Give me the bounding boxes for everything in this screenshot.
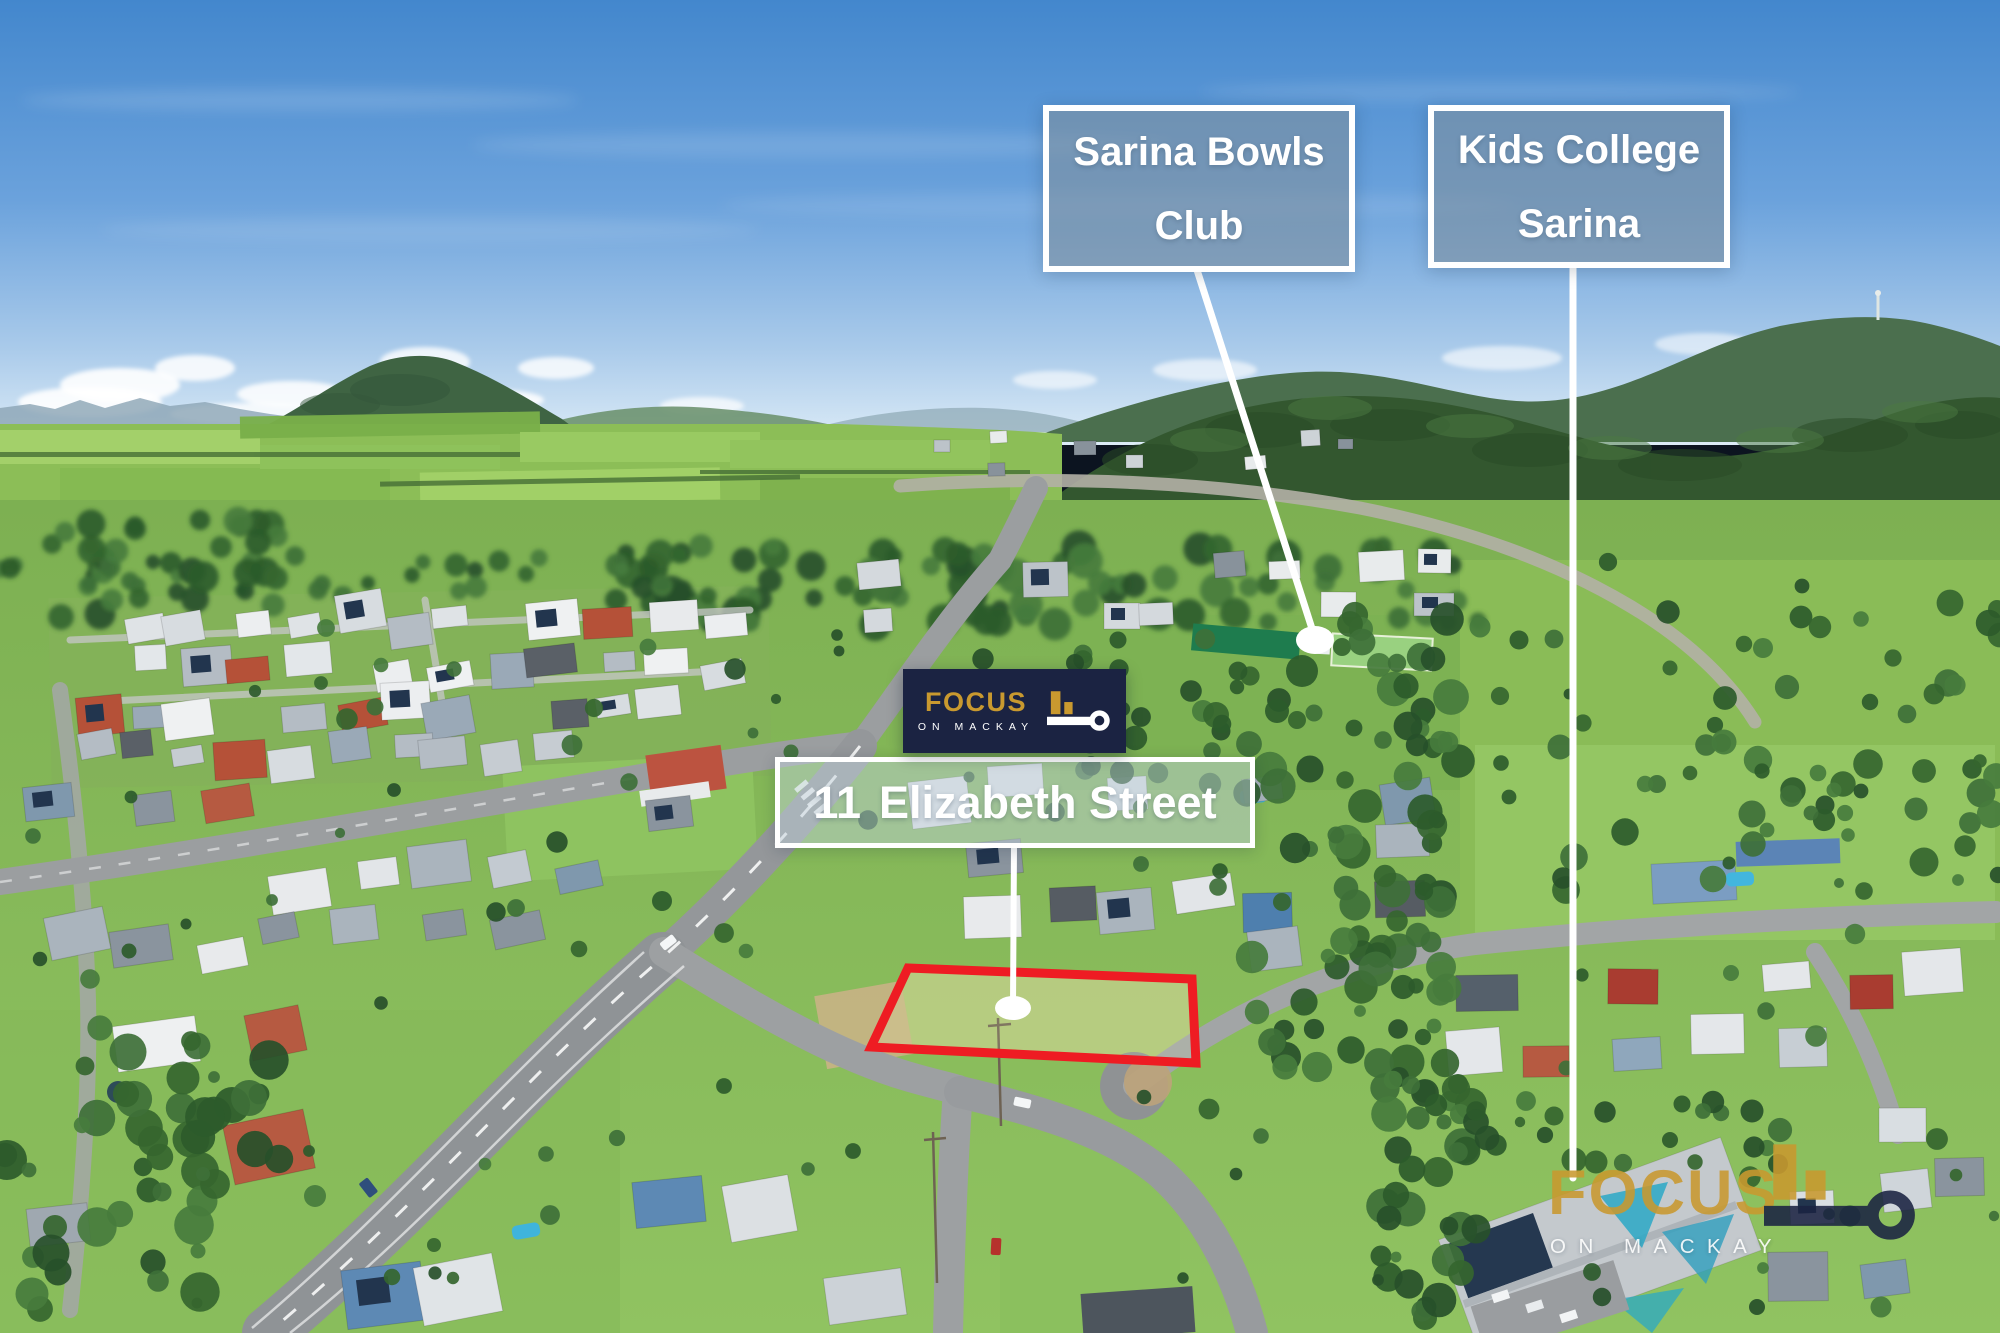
street-number: 11	[813, 780, 861, 825]
real-estate-aerial-image: Sarina Bowls Club Kids College Sarina 11…	[0, 0, 2000, 1333]
key-icon	[1047, 691, 1111, 731]
poi-label-line2: Club	[1155, 206, 1244, 246]
street-name: Elizabeth Street	[879, 780, 1217, 825]
leader-line-property	[1013, 846, 1014, 1005]
brand-watermark: FOCUS ON MACKAY	[1540, 1140, 1960, 1290]
brand-logo-badge: FOCUS ON MACKAY	[903, 669, 1126, 753]
property-address-label: 11 Elizabeth Street	[775, 757, 1255, 848]
brand-title: FOCUS	[925, 689, 1027, 716]
poi-label-line2: Sarina	[1518, 204, 1640, 244]
poi-label-line1: Kids College	[1458, 130, 1700, 170]
property-boundary	[871, 968, 1196, 1063]
brand-subtitle: ON MACKAY	[918, 722, 1034, 733]
map-pin-bowls-club	[1296, 626, 1334, 654]
poi-label-bowls-club: Sarina Bowls Club	[1043, 105, 1355, 272]
brand-badge-text: FOCUS ON MACKAY	[918, 689, 1034, 733]
watermark-title: FOCUS	[1548, 1162, 1779, 1225]
map-pin-property	[995, 996, 1031, 1020]
poi-label-line1: Sarina Bowls	[1073, 132, 1324, 172]
watermark-subtitle: ON MACKAY	[1550, 1237, 1784, 1258]
key-icon	[1764, 1144, 1918, 1240]
poi-label-kids-college: Kids College Sarina	[1428, 105, 1730, 268]
farm-fields	[0, 411, 1062, 512]
